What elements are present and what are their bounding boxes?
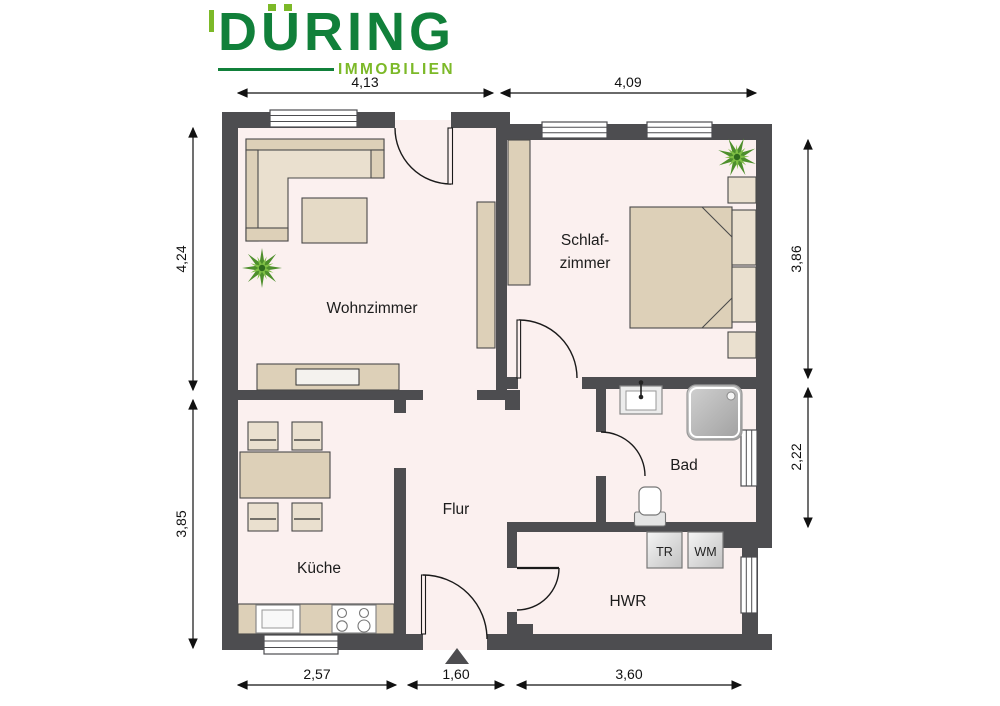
bed-pillow [732,210,756,265]
wall [505,400,520,410]
faucet-icon [639,395,644,400]
wall [477,390,520,400]
wall [496,128,507,390]
dim-label-bottom-middle: 1,60 [442,666,469,682]
shelf [477,202,495,348]
sofa-armrest [246,228,288,241]
chair [248,503,278,531]
door-leaf-living [448,128,453,184]
burner [358,620,370,632]
dining-table [240,452,330,498]
label-bedroom-2: zimmer [560,255,611,272]
dryer-label: TR [656,545,673,559]
wall [222,112,238,650]
nightstand [728,177,756,203]
wall [507,612,517,650]
chair [248,422,278,450]
entrance-arrow-icon [445,648,469,664]
wall [496,377,518,389]
dim-label-bottom-right: 3,60 [615,666,642,682]
label-kitchen: Küche [297,560,341,577]
tv [296,369,359,385]
sofa-armrest [371,150,384,178]
dim-label-left-upper: 4,24 [173,245,189,272]
wall [222,390,423,400]
wardrobe [508,140,530,285]
label-utility: HWR [609,593,646,610]
dim-label-top-left: 4,13 [351,74,378,90]
sofa-back [246,139,384,150]
wall [394,390,406,413]
dim-label-right-upper: 3,86 [788,245,804,272]
dim-label-bottom-left: 2,57 [303,666,330,682]
wall [507,522,517,568]
dim-label-top-right: 4,09 [614,74,641,90]
toilet-bowl [639,487,661,515]
door-leaf-entrance [422,575,426,634]
window-living-top [270,110,357,127]
wall [517,624,533,640]
faucet-icon [639,380,644,385]
nightstand [728,332,756,358]
washer-label: WM [694,545,716,559]
dim-label-right-lower: 2,22 [788,443,804,470]
floor-plan-page: DURING IMMOBILIEN [0,0,1000,706]
plant-icon [242,248,282,288]
wall [507,522,756,532]
window-bedroom-2 [647,122,712,138]
label-living: Wohnzimmer [326,300,417,317]
wall [496,124,772,140]
chair [292,422,322,450]
chair [292,503,322,531]
door-leaf-bedroom [517,320,521,378]
window-bedroom-1 [542,122,607,138]
burner [360,609,369,618]
sofa-back [246,150,258,241]
floor-plan-svg: TR WM Wohnzimmer Schlaf- zimmer Küche Fl… [0,0,1000,706]
sink-basin [262,610,293,628]
bed-mattress [630,207,732,328]
shower-drain [727,392,735,400]
label-bedroom-1: Schlaf- [561,232,609,249]
burner [338,609,347,618]
label-bath: Bad [670,457,698,474]
burner [337,621,347,631]
wall [596,476,606,526]
window-utility-right [741,557,757,613]
coffee-table [302,198,367,243]
window-kitchen-bottom [264,635,338,654]
dim-label-left-lower: 3,85 [173,510,189,537]
wall [596,389,606,432]
label-hall: Flur [443,501,470,518]
bed-pillow [732,267,756,322]
wall [756,124,772,548]
window-bath-right [741,430,757,486]
wall [394,468,406,650]
